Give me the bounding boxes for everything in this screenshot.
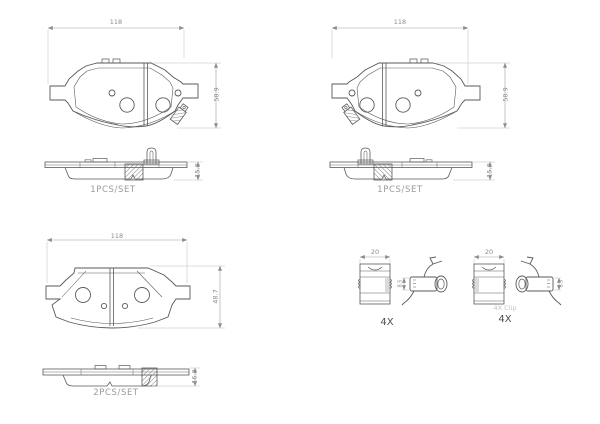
width-dimension: 118: [87, 233, 147, 240]
front-pad-left-edge-panel: 15.8 1PCS/SET: [35, 145, 225, 203]
clip-right-quantity: 4X: [485, 314, 525, 325]
clip-left-quantity: 4X: [367, 317, 407, 328]
clip-width-dimension: 20: [353, 249, 397, 256]
clip-height-dimension: 8.5: [398, 274, 405, 294]
height-dimension: 58.9: [214, 80, 221, 110]
thickness-dimension: 15.8: [195, 158, 202, 184]
rear-pad-panel: 118 48.7: [38, 233, 238, 348]
front-pad-left-panel: 118 58.9: [40, 10, 240, 140]
thickness-dimension: 15.8: [487, 158, 494, 184]
rear-pad-edge-panel: 16.8 2PCS/SET: [35, 352, 225, 400]
clip-right-front-view: 20: [467, 249, 511, 307]
thickness-dimension: 16.8: [192, 364, 199, 390]
front-pad-right-panel: 118 58.9: [325, 10, 535, 140]
clip-note-watermark: 4X Clip: [475, 304, 535, 312]
clip-height-dimension: 8.5: [559, 274, 566, 294]
clip-width-dimension: 20: [467, 249, 511, 256]
height-dimension: 48.7: [213, 282, 220, 312]
width-dimension: 118: [370, 19, 430, 26]
front-pad-right-drawing: [325, 10, 535, 140]
accessory-clips-panel: 20 8.5 4X 20 8.5: [345, 245, 560, 340]
clip-right-side-view: 8.5: [511, 255, 563, 307]
width-dimension: 118: [86, 19, 146, 26]
rear-pad-drawing: [38, 233, 238, 348]
front-pad-left-drawing: [40, 10, 240, 140]
height-dimension: 58.9: [503, 80, 510, 110]
clip-left-front-view: 20: [353, 249, 397, 307]
technical-drawing-sheet: 118 58.9 15.8 1PCS/SET 118 58.9 15.8: [0, 0, 600, 424]
front-pad-right-edge-panel: 15.8 1PCS/SET: [330, 145, 520, 203]
clip-left-side-view: 8.5: [400, 255, 452, 307]
pcs-per-set-label: 1PCS/SET: [73, 185, 153, 195]
pcs-per-set-label: 2PCS/SET: [76, 388, 156, 398]
pcs-per-set-label: 1PCS/SET: [360, 185, 440, 195]
